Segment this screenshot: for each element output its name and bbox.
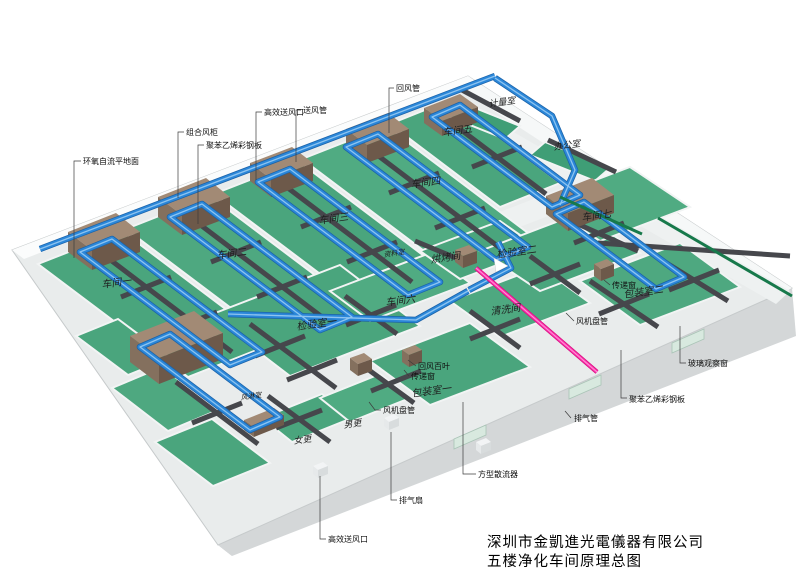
title-diagram-name: 五楼净化车间原理总图: [487, 553, 642, 570]
callout-label-return-duct: 回风管: [396, 83, 420, 93]
callout-label-pass-through-window-1: 传递窗: [411, 371, 435, 381]
callout-label-exhaust-duct: 排气管: [574, 413, 598, 423]
diagram-title: 深圳市金凱進光電儀器有限公司 五楼净化车间原理总图: [487, 533, 704, 570]
callout-label-hepa-outlet-bottom: 高效送风口: [328, 534, 368, 544]
title-company-name: 深圳市金凱進光電儀器有限公司: [487, 533, 704, 551]
floorplan-canvas: 环氧自流平地面组合风柜聚苯乙烯彩钢板高效送风口送风管回风管排气扇方型散流器高效送…: [0, 0, 800, 587]
callout-label-polystyrene-panel-right: 聚苯乙烯彩钢板: [629, 394, 685, 404]
callout-label-return-air-louver: 回风百叶: [418, 362, 450, 371]
callout-label-fan-coil-right: 风机盘管: [576, 316, 608, 326]
callout-label-epoxy-floor: 环氧自流平地面: [83, 156, 139, 166]
callout-label-glass-observation-window: 玻璃观察窗: [688, 358, 728, 368]
callout-label-supply-duct: 送风管: [303, 105, 327, 115]
diagram-page: 环氧自流平地面组合风柜聚苯乙烯彩钢板高效送风口送风管回风管排气扇方型散流器高效送…: [0, 0, 800, 587]
callout-label-hepa-outlet-top: 高效送风口: [264, 107, 304, 117]
callout-label-exhaust-fan: 排气扇: [399, 495, 423, 505]
callout-label-polystyrene-panel-top: 聚苯乙烯彩钢板: [206, 140, 262, 150]
callout-label-fan-coil-bottom: 风机盘管: [383, 405, 415, 415]
callout-label-square-diffuser: 方型散流器: [478, 469, 518, 479]
callout-label-combined-air-cabinet: 组合风柜: [186, 127, 218, 137]
